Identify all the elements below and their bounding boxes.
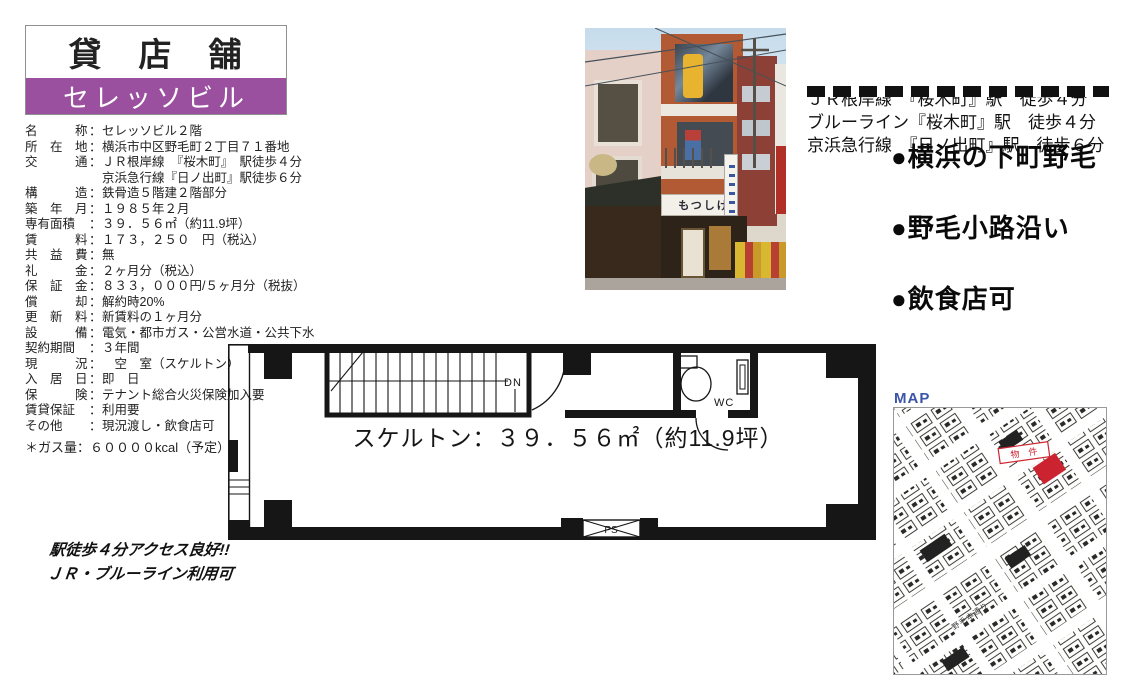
detail-value: ＪＲ根岸線 『桜木町』 駅徒歩４分 (102, 155, 302, 171)
detail-value: 現況渡し・飲食店可 (102, 419, 215, 435)
detail-label: 築 年 月 (25, 202, 89, 218)
detail-separator: ： (89, 264, 102, 280)
flyer-page: 貸 店 舗 セレッソビル 名 称：セレッソビル２階 所 在 地：横浜市中区野毛町… (0, 0, 1128, 700)
area-map: 物 件 野毛本通り (893, 407, 1107, 675)
detail-value: 解約時20% (102, 295, 165, 311)
detail-separator: ： (89, 233, 102, 249)
detail-separator: ： (89, 372, 102, 388)
table-row: 保 証 金：８３３，０００円/５ヶ月分（税抜） (25, 279, 305, 295)
detail-separator: ： (89, 419, 102, 435)
staircase (327, 347, 529, 415)
map-logo: MAP (894, 390, 930, 407)
table-row: 交 通：ＪＲ根岸線 『桜木町』 駅徒歩４分 (25, 155, 305, 171)
detail-separator: ： (89, 155, 102, 171)
table-row: 更 新 料：新賃料の１ヶ月分 (25, 310, 305, 326)
detail-label: 所 在 地 (25, 140, 89, 156)
header-box: 貸 店 舗 セレッソビル (25, 25, 287, 115)
detail-value: 鉄骨造５階建２階部分 (102, 186, 227, 202)
detail-label (25, 171, 89, 187)
detail-label: 契約期間 (25, 341, 89, 357)
detail-value: 横浜市中区野毛町２丁目７１番地 (102, 140, 290, 156)
detail-value: 京浜急行線『日ノ出町』駅徒歩６分 (102, 171, 302, 187)
table-row: 専有面積：３９．５６㎡（約11.9坪） (25, 217, 305, 233)
floor-plan: DN WC PS スケルトン：３９．５６㎡（約11.9坪） (228, 344, 876, 540)
highlight-item: ●飲食店可 (891, 283, 1097, 315)
photo-menu-stand (681, 228, 705, 278)
detail-label: 償 却 (25, 295, 89, 311)
detail-separator: ： (89, 310, 102, 326)
detail-separator: ： (89, 124, 102, 140)
detail-label: 名 称 (25, 124, 89, 140)
storefront-sign-text: もつしげ (678, 197, 730, 213)
detail-separator (89, 171, 102, 187)
stair-direction-label: DN (504, 377, 522, 389)
highlight-item: ●横浜の下町野毛 (891, 141, 1097, 173)
gas-note: ＊ガス量：６００００kcal（予定） (25, 437, 230, 456)
tagline: 駅徒歩４分アクセス良好!!ＪＲ・ブルーライン利用可 (46, 467, 245, 587)
tagline-line: 駅徒歩４分アクセス良好!! (48, 539, 237, 563)
detail-label: 構 造 (25, 186, 89, 202)
detail-value: ８３３，０００円/５ヶ月分（税抜） (102, 279, 305, 295)
detail-separator: ： (89, 295, 102, 311)
detail-label: 保 険 (25, 388, 89, 404)
wc-label: WC (714, 397, 734, 409)
detail-label: 交 通 (25, 155, 89, 171)
table-row: 礼 金：２ヶ月分（税込） (25, 264, 305, 280)
detail-value: １７３，２５０ 円（税込） (102, 233, 265, 249)
detail-label: 更 新 料 (25, 310, 89, 326)
dashed-divider (807, 86, 1109, 97)
detail-separator: ： (89, 341, 102, 357)
detail-value: セレッソビル２階 (102, 124, 202, 140)
detail-value: 空 室（スケルトン） (102, 357, 240, 373)
tagline-line: ＪＲ・ブルーライン利用可 (46, 563, 235, 587)
floor-area-label: スケルトン：３９．５６㎡（約11.9坪） (352, 425, 783, 451)
highlight-list: ●横浜の下町野毛●野毛小路沿い●飲食店可 (891, 141, 1097, 354)
detail-label: 礼 金 (25, 264, 89, 280)
detail-label: 賃 料 (25, 233, 89, 249)
detail-separator: ： (89, 279, 102, 295)
table-row: 築 年 月：１９８５年２月 (25, 202, 305, 218)
table-row: 償 却：解約時20% (25, 295, 305, 311)
table-row: 構 造：鉄骨造５階建２階部分 (25, 186, 305, 202)
detail-label: その他 (25, 419, 89, 435)
building-photo: もつしげ (585, 28, 786, 290)
detail-value: ３９．５６㎡（約11.9坪） (102, 217, 250, 233)
building-name: セレッソビル (26, 78, 286, 114)
detail-separator: ： (89, 388, 102, 404)
detail-value: １９８５年２月 (102, 202, 190, 218)
detail-value: 即 日 (102, 372, 140, 388)
photo-shop-glow (709, 226, 731, 270)
station-access-line: ブルーライン『桜木町』駅 徒歩４分 (807, 111, 1105, 134)
detail-value: ３年間 (102, 341, 140, 357)
table-row: 共 益 費：無 (25, 248, 305, 264)
table-row: 賃 料：１７３，２５０ 円（税込） (25, 233, 305, 249)
detail-label: 共 益 費 (25, 248, 89, 264)
property-category: 貸 店 舗 (26, 26, 286, 78)
detail-separator: ： (89, 357, 102, 373)
table-row: 名 称：セレッソビル２階 (25, 124, 305, 140)
detail-value: 新賃料の１ヶ月分 (102, 310, 202, 326)
detail-label: 設 備 (25, 326, 89, 342)
table-row: 所 在 地：横浜市中区野毛町２丁目７１番地 (25, 140, 305, 156)
detail-label: 現 況 (25, 357, 89, 373)
detail-label: 専有面積 (25, 217, 89, 233)
map-canvas: 物 件 野毛本通り (894, 408, 1106, 674)
detail-separator: ： (89, 140, 102, 156)
photo-power-lines (585, 28, 786, 168)
detail-label: 保 証 金 (25, 279, 89, 295)
detail-value: 無 (102, 248, 115, 264)
detail-label: 賃貸保証 (25, 403, 89, 419)
detail-label: 入 居 日 (25, 372, 89, 388)
detail-separator: ： (89, 217, 102, 233)
detail-value: 利用要 (102, 403, 140, 419)
detail-separator: ： (89, 248, 102, 264)
photo-street (585, 278, 786, 290)
table-row: 設 備：電気・都市ガス・公営水道・公共下水 (25, 326, 305, 342)
table-row: 京浜急行線『日ノ出町』駅徒歩６分 (25, 171, 305, 187)
highlight-item: ●野毛小路沿い (891, 212, 1097, 244)
detail-separator: ： (89, 326, 102, 342)
detail-value: 電気・都市ガス・公営水道・公共下水 (102, 326, 315, 342)
detail-separator: ： (89, 403, 102, 419)
ps-label: PS (604, 525, 618, 536)
detail-separator: ： (89, 202, 102, 218)
detail-separator: ： (89, 186, 102, 202)
detail-value: ２ヶ月分（税込） (102, 264, 202, 280)
